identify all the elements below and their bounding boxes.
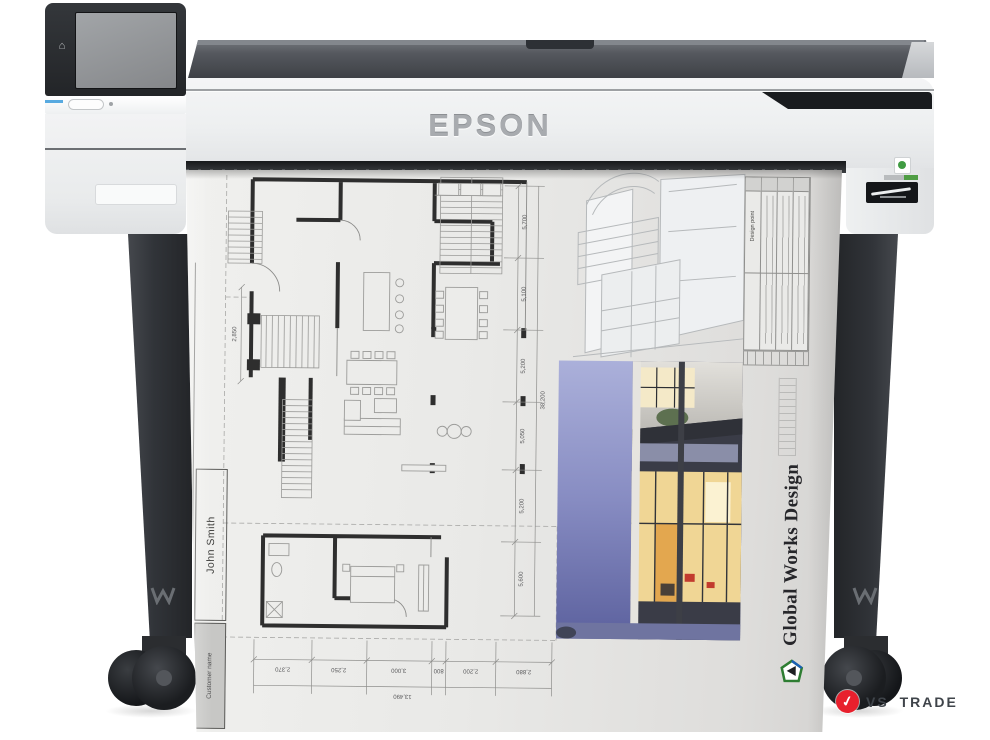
- caster-hub-right: [846, 670, 862, 686]
- eco-leaf-icon: [898, 161, 906, 169]
- roll-cover-latch: [526, 40, 594, 49]
- cover-handle: [95, 184, 177, 205]
- notes-column: [776, 178, 794, 350]
- svg-text:2,880: 2,880: [515, 668, 531, 674]
- accent-stripe: [45, 100, 63, 103]
- notes-text-lines: [795, 196, 806, 344]
- vstrade-check-icon: ✓: [834, 688, 861, 715]
- wireframe-elevation: [573, 173, 749, 359]
- certification-strip: [884, 175, 918, 180]
- vstrade-label: VS TRADE: [866, 694, 958, 710]
- roll-cover: [188, 40, 932, 78]
- notes-text-lines: [763, 196, 774, 344]
- spec-notes-table: Design point: [743, 176, 811, 351]
- home-icon: ⌂: [55, 39, 69, 53]
- caster-hub-left: [156, 670, 172, 686]
- svg-text:2,850: 2,850: [232, 326, 238, 342]
- studio-logo-icon: [780, 659, 804, 683]
- badge-swoosh: [871, 187, 911, 196]
- svg-text:5,050: 5,050: [520, 428, 526, 444]
- stand-emblem-icon: [852, 585, 878, 605]
- svg-text:2,200: 2,200: [462, 667, 478, 673]
- notes-text-lines: [779, 196, 790, 344]
- model-badge: [866, 182, 918, 203]
- designer-name-box: John Smith: [194, 469, 228, 621]
- control-panel: ⌂: [45, 3, 186, 96]
- svg-text:2,250: 2,250: [331, 666, 347, 672]
- svg-text:5,200: 5,200: [521, 358, 527, 374]
- badge-line: [880, 196, 906, 198]
- product-photo: ⌂ EPSON: [0, 0, 990, 740]
- notes-column: [792, 178, 810, 350]
- notes-footer-row: [743, 350, 809, 366]
- stand-leg-right: [834, 234, 898, 638]
- notes-header-cell: [746, 177, 761, 191]
- customer-name-box: Customer name: [193, 623, 226, 729]
- dark-accent-wedge: [762, 92, 932, 109]
- touchscreen: [75, 12, 177, 89]
- stand-emblem-icon: [150, 585, 176, 605]
- svg-text:5,700: 5,700: [522, 214, 528, 230]
- svg-text:800: 800: [433, 667, 444, 673]
- notes-column: [760, 178, 778, 350]
- svg-text:3,000: 3,000: [391, 667, 407, 673]
- power-button: [68, 99, 104, 110]
- print-content: 2,370 2,250 3,000 800 2,200 2,880 13,490…: [183, 167, 845, 736]
- svg-text:38,200: 38,200: [540, 390, 546, 409]
- scale-bar: [778, 378, 797, 456]
- eco-label-icon: [894, 157, 911, 174]
- svg-text:5,100: 5,100: [522, 286, 528, 302]
- vstrade-watermark: ✓ VS TRADE: [836, 690, 958, 713]
- notes-column: Design point: [744, 177, 762, 349]
- printed-poster: 2,370 2,250 3,000 800 2,200 2,880 13,490…: [186, 170, 842, 732]
- svg-text:5,200: 5,200: [519, 498, 525, 514]
- furniture: [266, 181, 501, 619]
- studio-title: Global Works Design: [774, 455, 810, 655]
- photo-render: [556, 360, 743, 640]
- power-led: [109, 102, 113, 106]
- svg-text:5,600: 5,600: [519, 571, 525, 587]
- notes-header-label: Design point: [745, 191, 761, 261]
- svg-text:2,370: 2,370: [275, 666, 291, 672]
- floor-plan: [222, 175, 561, 640]
- certification-strip-green: [904, 175, 918, 180]
- housing-seam: [45, 148, 186, 150]
- svg-text:13,490: 13,490: [393, 693, 412, 699]
- stand-leg-left: [128, 234, 192, 638]
- panel-base: [45, 96, 186, 114]
